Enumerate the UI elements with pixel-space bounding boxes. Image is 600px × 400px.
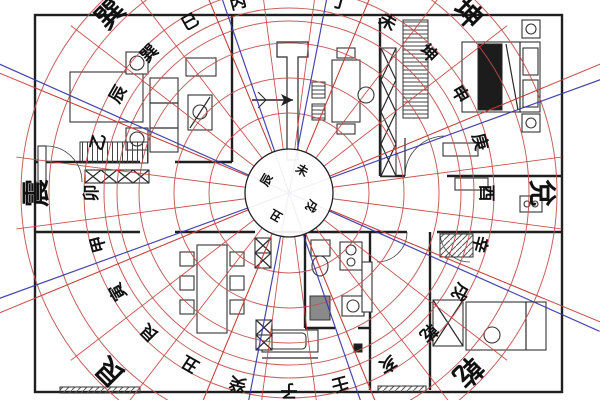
mountain-char: 艮 [136,319,163,346]
mountain-char: 酉 [476,185,496,202]
major-direction-line [144,234,273,400]
mountain-char: 丙 [227,0,249,15]
mountain-char: 巽 [137,41,163,67]
mountain-char: 壬 [329,371,351,395]
major-direction-line [306,234,435,400]
luopan-hub-circle [245,149,333,237]
trigram-char: 巽 [89,0,132,36]
mountain-char: 子 [281,380,298,400]
mountain-char: 癸 [226,371,250,396]
trigram-char: 坤 [446,0,489,36]
trigram-char: 震 [20,178,53,207]
mountain-char: 庚 [467,131,492,153]
mountain-char: 丁 [329,0,351,15]
mountain-char: 卯 [82,185,102,202]
luopan-overlay: 兌乾艮震巽坤酉辛戌乾亥壬子癸丑艮寅甲卯乙辰巽巳丙丁未坤申庚戌丑辰未 [0,0,600,400]
trigram-char: 艮 [88,350,132,394]
fengshui-floorplan-diagram: { "colors": { "background": "#ffffff", "… [0,0,600,400]
mountain-char: 乙 [87,131,111,153]
trigram-char: 乾 [446,350,489,393]
mountain-char: 乾 [415,319,442,346]
mountain-char: 甲 [87,233,111,255]
trigram-char: 兌 [526,179,559,207]
mountain-char: 辛 [467,233,492,255]
mountain-char: 坤 [415,40,442,67]
